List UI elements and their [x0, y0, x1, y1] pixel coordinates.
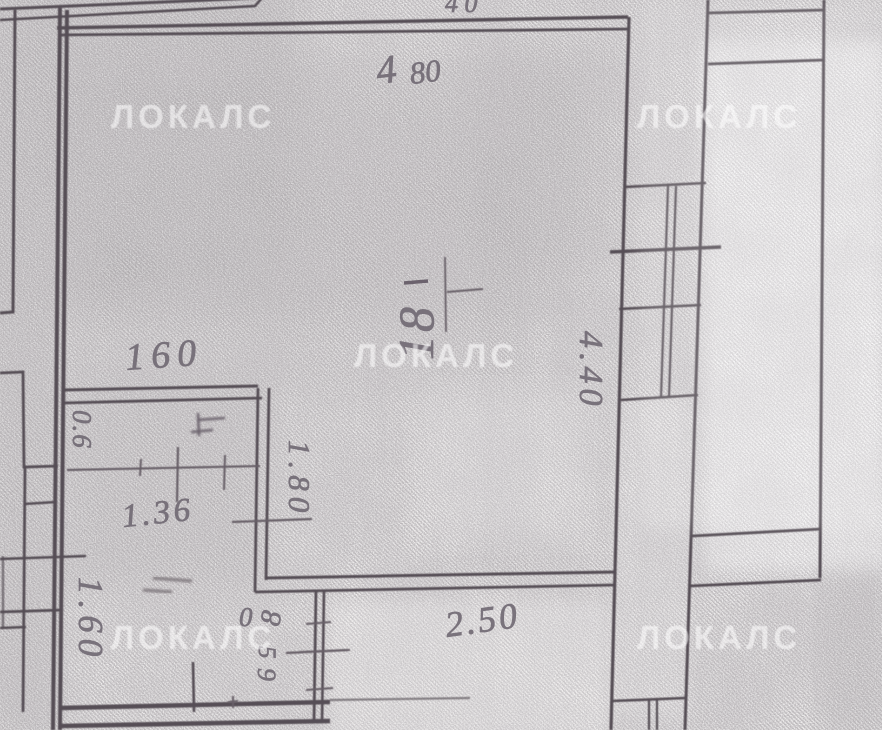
svg-text:ЛОКАЛС: ЛОКАЛС	[637, 619, 801, 656]
svg-text:160: 160	[124, 332, 205, 379]
svg-text:1.36: 1.36	[120, 492, 195, 535]
svg-text:ЛОКАЛС: ЛОКАЛС	[111, 98, 275, 135]
svg-text:9: 9	[252, 668, 281, 681]
svg-text:4.40: 4.40	[572, 331, 609, 411]
svg-text:4 0: 4 0	[445, 0, 478, 18]
svg-text:1.80: 1.80	[282, 440, 317, 518]
svg-text:0.6: 0.6	[67, 410, 97, 450]
svg-text:ЛОКАЛС: ЛОКАЛС	[111, 619, 275, 656]
svg-text:ЛОКАЛС: ЛОКАЛС	[637, 98, 801, 135]
svg-text:ЛОКАЛС: ЛОКАЛС	[354, 337, 518, 374]
svg-text:1.60: 1.60	[71, 577, 110, 662]
svg-text:80: 80	[408, 52, 444, 91]
